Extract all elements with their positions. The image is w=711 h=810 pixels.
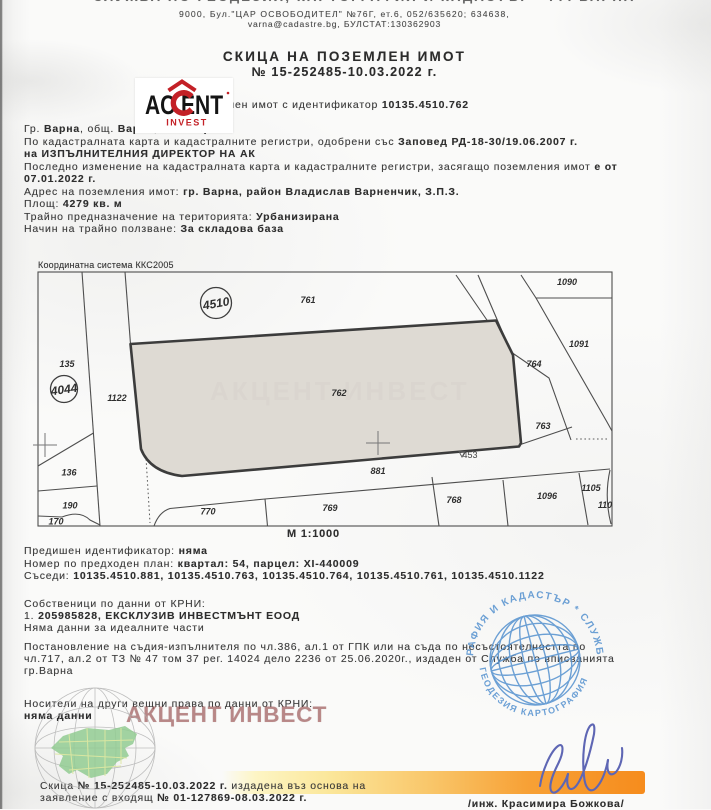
svg-text:769: 769	[322, 503, 337, 513]
svg-text:453: 453	[462, 450, 477, 460]
svg-text:1096: 1096	[537, 491, 558, 501]
svg-text:190: 190	[62, 501, 77, 511]
svg-text:INVEST: INVEST	[166, 118, 208, 128]
svg-text:762: 762	[331, 388, 346, 398]
svg-text:4044: 4044	[49, 381, 79, 399]
svg-text:135: 135	[59, 359, 75, 369]
svg-text:763: 763	[535, 421, 550, 431]
svg-text:1105: 1105	[581, 483, 601, 493]
svg-text:4510: 4510	[201, 294, 231, 313]
svg-text:761: 761	[300, 295, 315, 305]
svg-text:881: 881	[370, 466, 385, 476]
svg-text:1090: 1090	[557, 277, 577, 287]
svg-text:РАФИЯ И КАДАСТЪР * СЛУЖБА ПО: РАФИЯ И КАДАСТЪР * СЛУЖБА ПО	[455, 580, 605, 656]
svg-text:768: 768	[446, 495, 461, 505]
svg-text:770: 770	[200, 507, 215, 517]
svg-text:1122: 1122	[107, 393, 126, 403]
svg-text:764: 764	[526, 359, 541, 369]
svg-text:AC: AC	[145, 91, 175, 121]
svg-text:110: 110	[598, 500, 612, 510]
svg-text:136: 136	[61, 468, 77, 478]
svg-text:1091: 1091	[569, 339, 589, 349]
svg-text:170: 170	[48, 517, 63, 527]
